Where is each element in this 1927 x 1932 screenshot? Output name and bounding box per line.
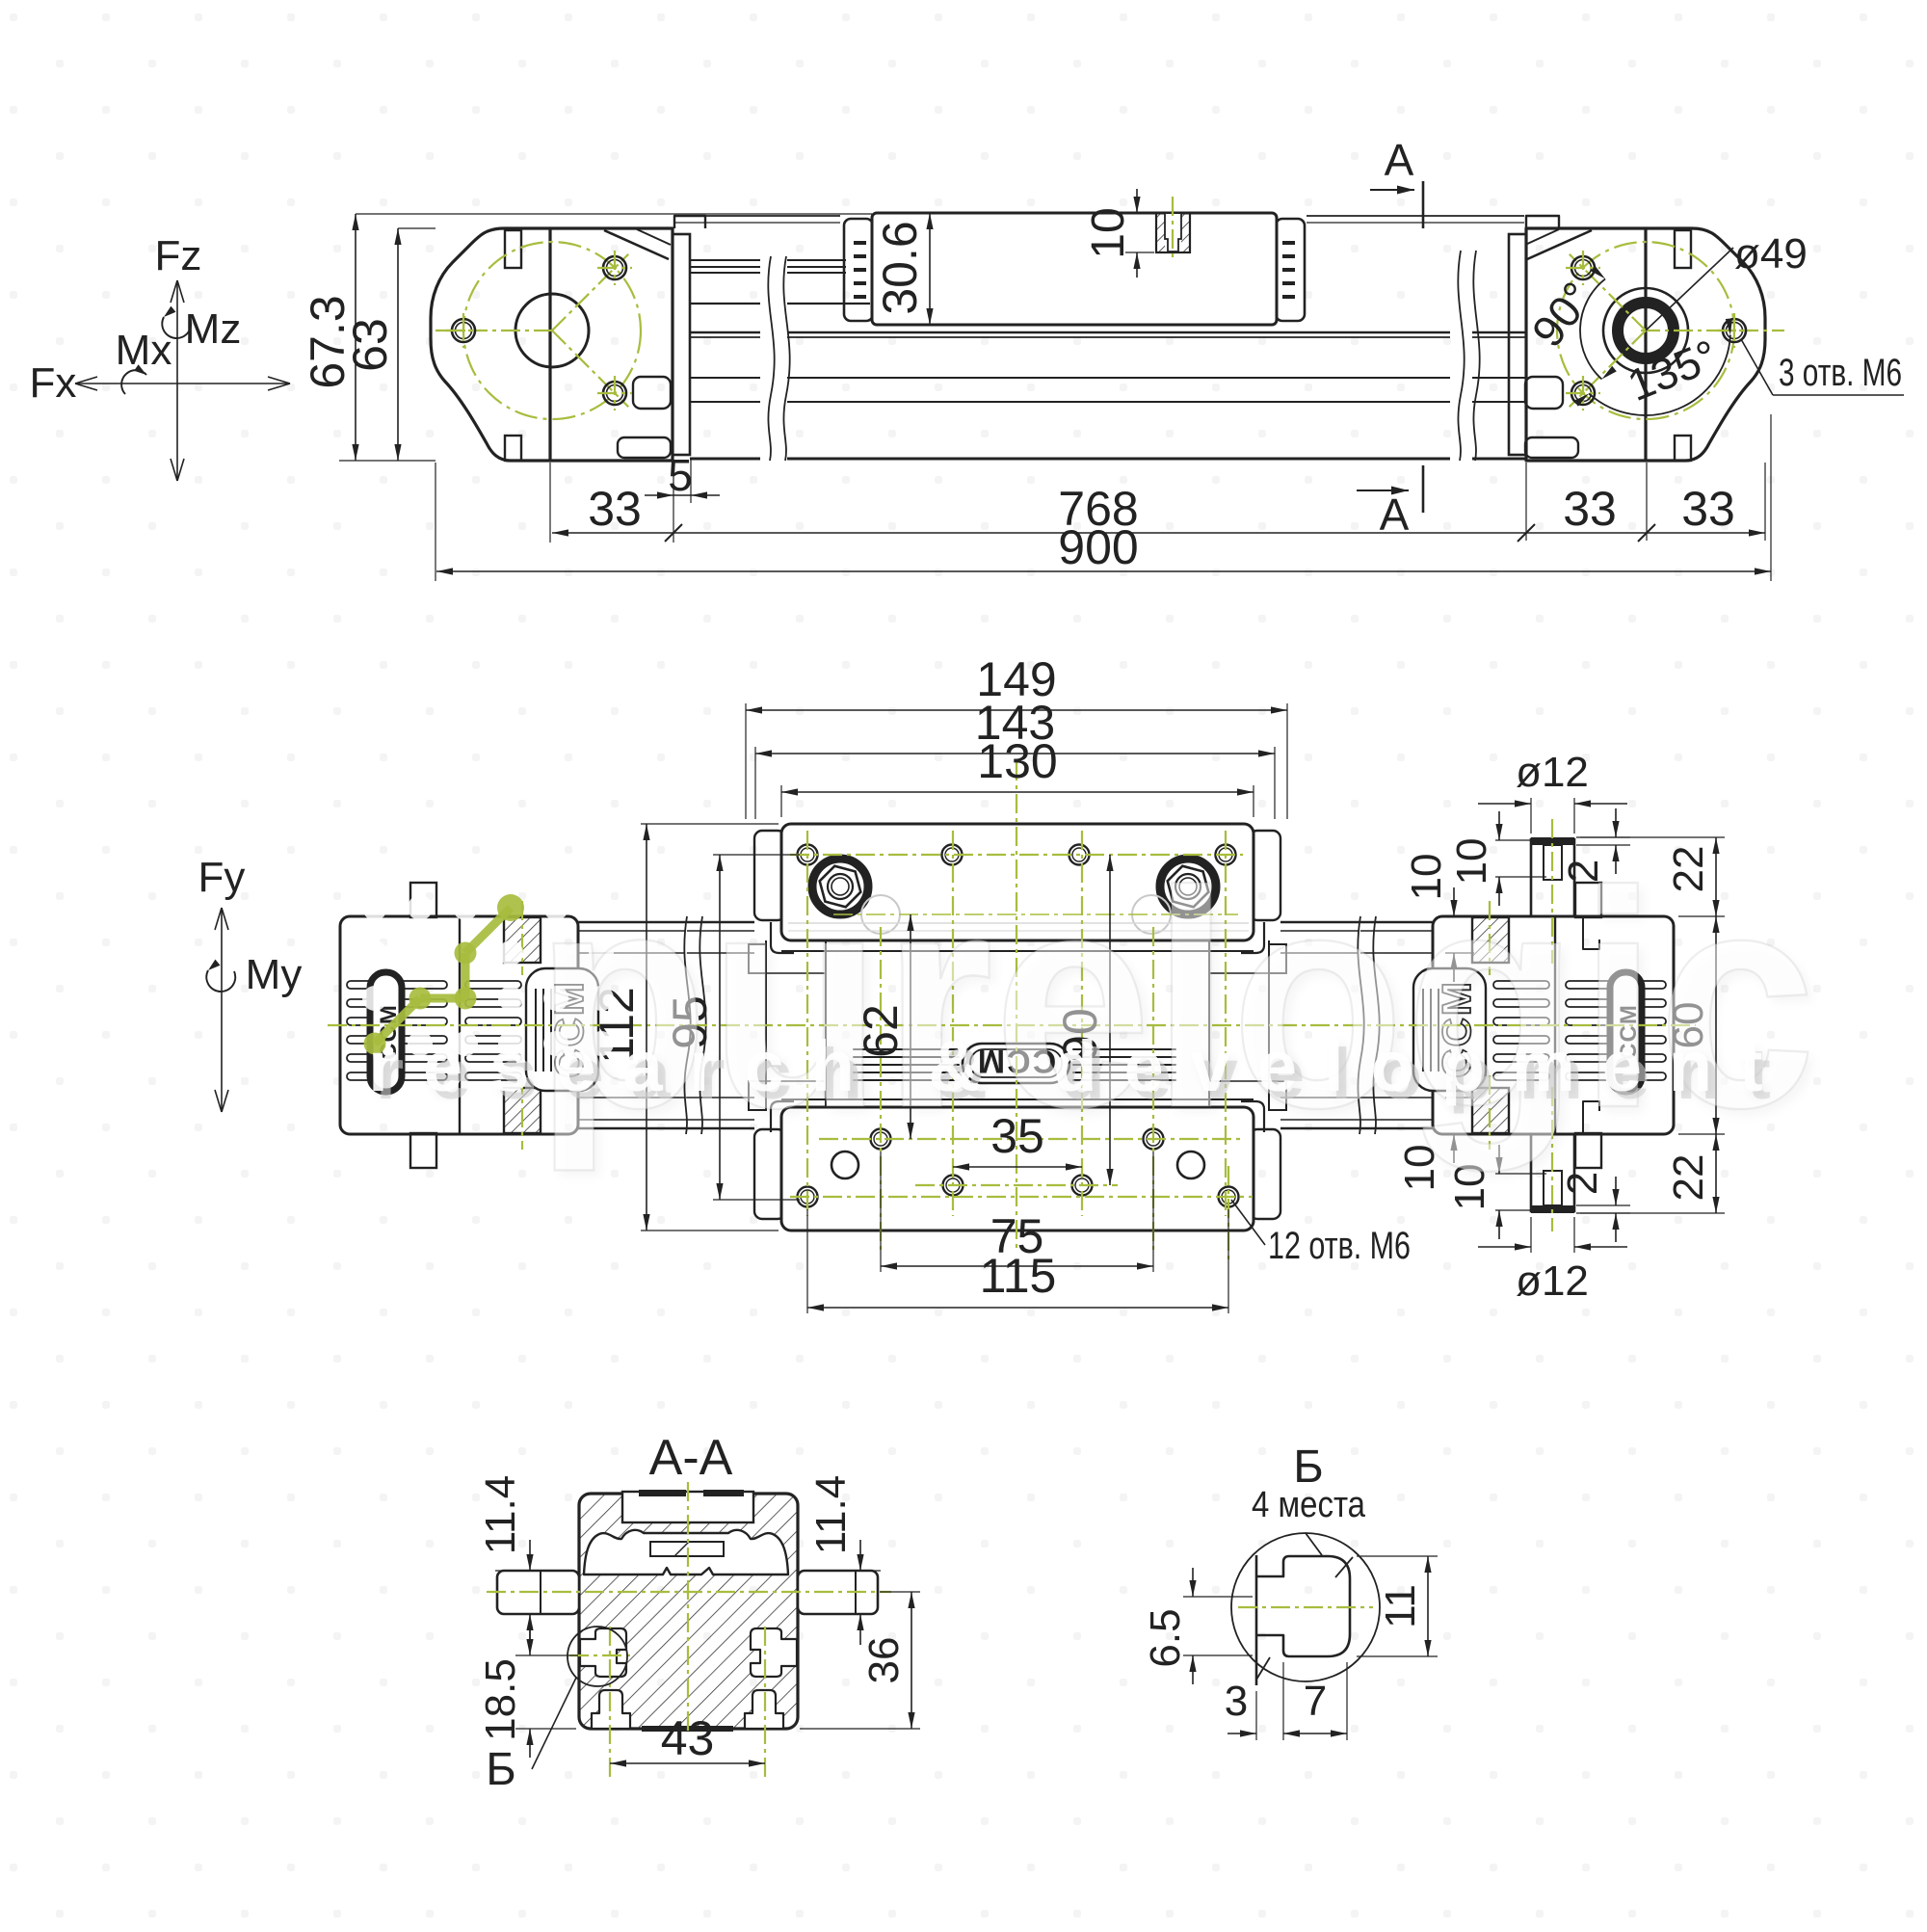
svg-text:18.5: 18.5 [477,1658,524,1741]
svg-text:ø12: ø12 [1516,749,1589,796]
svg-text:30.6: 30.6 [873,221,927,314]
svg-text:36: 36 [860,1637,908,1684]
svg-text:5: 5 [668,450,693,500]
svg-text:Fy: Fy [198,854,246,901]
svg-text:Fx: Fx [30,359,77,407]
svg-text:purelogic: purelogic [535,827,1816,1174]
svg-text:research & development: research & development [368,1026,1790,1106]
svg-text:33: 33 [1563,482,1617,536]
svg-text:130: 130 [977,734,1057,788]
svg-text:3: 3 [1225,1678,1248,1725]
svg-text:ø12: ø12 [1516,1257,1589,1305]
svg-text:Б: Б [486,1744,516,1795]
svg-text:12 отв. М6: 12 отв. М6 [1268,1225,1411,1267]
svg-text:4 места: 4 места [1252,1485,1366,1525]
svg-text:33: 33 [588,482,642,536]
svg-text:My: My [246,951,303,998]
svg-text:115: 115 [980,1249,1057,1303]
svg-text:Mx: Mx [116,327,172,374]
svg-text:11: 11 [1377,1584,1424,1628]
svg-text:11.4: 11.4 [477,1475,524,1554]
svg-text:33: 33 [1681,482,1735,536]
svg-text:А-А: А-А [649,1430,733,1486]
svg-text:А: А [1385,135,1414,185]
svg-text:Mz: Mz [185,305,242,353]
svg-text:10: 10 [1083,207,1134,258]
svg-text:63: 63 [343,318,397,372]
svg-text:7: 7 [1304,1678,1327,1725]
svg-text:ø49: ø49 [1734,230,1808,278]
svg-text:3 отв. М6: 3 отв. М6 [1779,352,1902,394]
svg-text:6.5: 6.5 [1142,1608,1189,1667]
svg-text:11.4: 11.4 [807,1475,855,1554]
svg-text:2: 2 [1559,1172,1606,1195]
svg-text:900: 900 [1058,520,1138,574]
svg-text:43: 43 [661,1711,715,1765]
svg-text:Fz: Fz [155,232,202,279]
